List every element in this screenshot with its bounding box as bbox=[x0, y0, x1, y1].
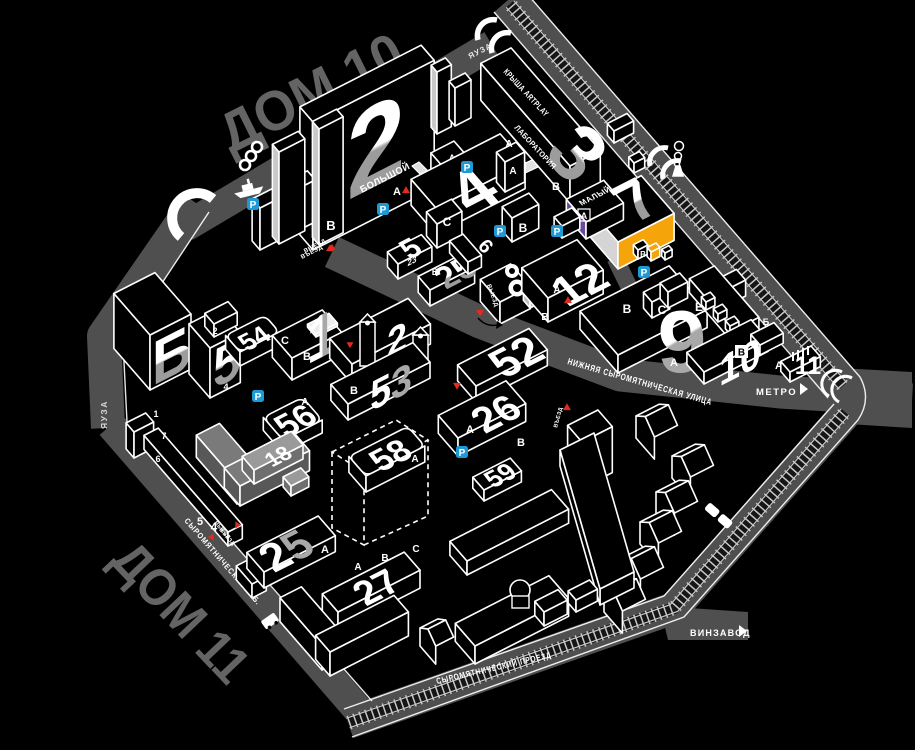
svg-text:11: 11 bbox=[795, 352, 822, 380]
svg-text:С: С bbox=[443, 215, 452, 229]
svg-text:А: А bbox=[509, 166, 516, 177]
svg-text:6: 6 bbox=[155, 454, 160, 464]
svg-text:А: А bbox=[354, 562, 361, 573]
svg-text:P: P bbox=[459, 448, 466, 459]
svg-text:В: В bbox=[303, 351, 311, 363]
svg-text:2: 2 bbox=[212, 326, 217, 336]
svg-text:С: С bbox=[281, 335, 289, 347]
svg-text:P: P bbox=[464, 163, 471, 174]
svg-text:P: P bbox=[497, 227, 504, 238]
svg-text:А: А bbox=[466, 424, 474, 436]
svg-text:В: В bbox=[326, 218, 335, 233]
svg-text:МЕТРО: МЕТРО bbox=[756, 387, 797, 398]
svg-text:А: А bbox=[393, 186, 401, 198]
svg-text:ЯУЗА: ЯУЗА bbox=[99, 400, 109, 429]
svg-text:В: В bbox=[640, 250, 646, 259]
svg-text:4: 4 bbox=[223, 382, 228, 392]
svg-text:А: А bbox=[321, 544, 329, 556]
svg-text:А: А bbox=[505, 139, 512, 150]
svg-text:1: 1 bbox=[153, 409, 158, 419]
svg-text:P: P bbox=[641, 268, 648, 279]
svg-text:С: С bbox=[658, 303, 667, 317]
svg-text:7: 7 bbox=[161, 431, 166, 441]
svg-text:В: В bbox=[517, 437, 525, 449]
svg-text:А: А bbox=[411, 454, 418, 465]
svg-text:P: P bbox=[250, 200, 257, 211]
svg-text:В: В bbox=[552, 181, 560, 193]
svg-text:P: P bbox=[380, 205, 387, 216]
svg-text:А: А bbox=[553, 285, 560, 296]
svg-text:В: В bbox=[541, 312, 548, 323]
svg-text:С: С bbox=[412, 544, 419, 555]
svg-text:P: P bbox=[554, 227, 561, 238]
svg-text:А: А bbox=[581, 211, 588, 221]
svg-text:В: В bbox=[519, 221, 528, 235]
svg-text:В: В bbox=[738, 348, 745, 359]
svg-text:А: А bbox=[301, 397, 308, 408]
svg-text:5: 5 bbox=[197, 516, 203, 528]
svg-text:В: В bbox=[432, 267, 439, 277]
svg-text:В: В bbox=[381, 553, 388, 564]
svg-text:В: В bbox=[623, 302, 632, 316]
svg-text:А: А bbox=[670, 357, 678, 369]
svg-text:В: В bbox=[350, 385, 358, 397]
svg-text:P: P bbox=[255, 392, 262, 403]
